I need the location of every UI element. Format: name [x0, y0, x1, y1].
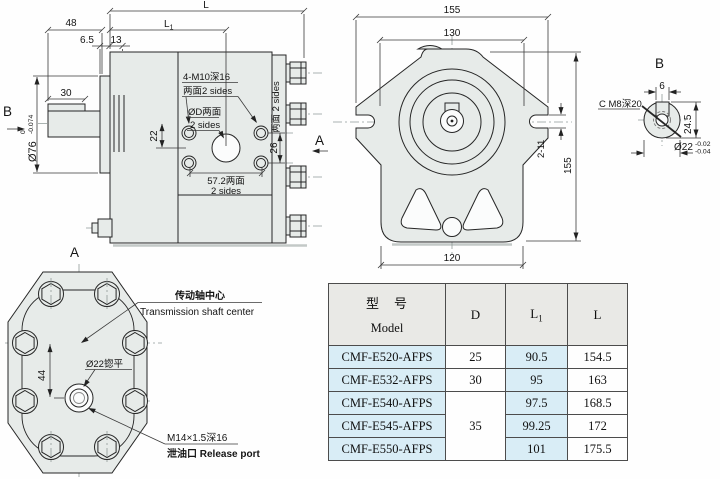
side-view: L L1 48 6.5 13 30 Ø76 0 -0.074 22 26 4-M…: [0, 0, 345, 265]
front-view: 155 130 2-11 155 120: [330, 0, 588, 285]
col-header-model-en: Model: [329, 321, 445, 336]
spec-table: 型 号 Model D L1 L CMF-E520-AFPS 25 90.5 1…: [328, 283, 628, 461]
l-cell: 175.5: [568, 438, 628, 461]
l1-cell: 95: [506, 369, 568, 392]
dim-155-right-label: 155: [563, 157, 574, 174]
l-cell: 168.5: [568, 392, 628, 415]
detailb-shaft-section: [642, 102, 681, 138]
rear-release-port: [65, 384, 93, 412]
table-row: CMF-E532-AFPS 30 95 163: [329, 369, 628, 392]
rear-view-a: A 44 Ø22锪平 传动轴中心 Transmission shaft cent…: [0, 240, 280, 479]
model-cell: CMF-E545-AFPS: [329, 415, 446, 438]
d-cell: 25: [446, 346, 506, 369]
section-label-b: B: [3, 104, 12, 119]
catalog-drawing-page: L L1 48 6.5 13 30 Ø76 0 -0.074 22 26 4-M…: [0, 0, 720, 479]
dim-overall-length-label: L: [203, 0, 209, 11]
dim-13-label: 13: [110, 35, 122, 46]
model-cell: CMF-E520-AFPS: [329, 346, 446, 369]
dim-44-label: 44: [37, 369, 48, 381]
view-label-a: A: [70, 245, 79, 260]
note-od-line2: 2 sides: [190, 120, 220, 131]
detail-b-view: B C M8深20 6 24.5 Ø22 -0.02 -0.04: [588, 50, 720, 180]
front-flange: [356, 46, 548, 243]
note-od-line1: ØD两面: [188, 107, 221, 118]
l1-cell: 101: [506, 438, 568, 461]
note-spotface-label: Ø22锪平: [86, 358, 123, 370]
note-release-port-name: 泄油口 Release port: [167, 447, 260, 460]
l-cell: 163: [568, 369, 628, 392]
spec-table-region: 型 号 Model D L1 L CMF-E520-AFPS 25 90.5 1…: [328, 283, 628, 461]
l-cell: 154.5: [568, 346, 628, 369]
col-header-model-cn: 型 号: [329, 293, 445, 312]
dim-57-2-label-en: 2 sides: [211, 186, 241, 197]
l1-cell: 99.25: [506, 415, 568, 438]
l-cell: 172: [568, 415, 628, 438]
col-header-model: 型 号 Model: [329, 284, 446, 346]
detail-label-b: B: [655, 56, 664, 71]
d-cell-merged: 35: [446, 392, 506, 461]
col-header-l1: L1: [506, 284, 568, 346]
table-row: CMF-E540-AFPS 35 97.5 168.5: [329, 392, 628, 415]
table-row: CMF-E520-AFPS 25 90.5 154.5: [329, 346, 628, 369]
note-both-sides-vertical: 两面 2 sides: [271, 81, 282, 133]
col-header-l: L: [568, 284, 628, 346]
dim-shaft-dia-label: Ø76: [27, 141, 39, 162]
section-label-a: A: [315, 133, 324, 148]
side-hex-fittings: [286, 62, 306, 237]
dim-26-label: 26: [269, 142, 280, 154]
table-header-row: 型 号 Model D L1 L: [329, 284, 628, 346]
note-c-m8-label: C M8深20: [599, 99, 642, 110]
dim-shaft-tol-lower: -0.074: [28, 115, 35, 134]
d-cell: 30: [446, 369, 506, 392]
col-header-d: D: [446, 284, 506, 346]
dim-120-label: 120: [444, 253, 461, 264]
note-m10-line2: 两面2 sides: [183, 86, 232, 97]
l1-cell: 90.5: [506, 346, 568, 369]
dim-dia22-tol-lower: -0.04: [695, 149, 711, 156]
dim-l1-label: L1: [164, 19, 174, 32]
note-shaft-center-en: Transmission shaft center: [140, 307, 255, 318]
dim-22-label: 22: [149, 130, 160, 142]
dim-slot-2-11-label: 2-11: [536, 140, 547, 158]
dim-48-label: 48: [65, 18, 77, 29]
note-release-port-spec: M14×1.5深16: [167, 432, 228, 444]
dim-24-5-label: 24.5: [683, 114, 694, 134]
dim-dia22-label: Ø22: [674, 142, 693, 153]
model-cell: CMF-E540-AFPS: [329, 392, 446, 415]
model-cell: CMF-E550-AFPS: [329, 438, 446, 461]
model-cell: CMF-E532-AFPS: [329, 369, 446, 392]
dim-key-width-label: 6: [659, 81, 665, 92]
side-pump-body: [48, 52, 286, 243]
rear-flange-body: [8, 272, 147, 473]
dim-30-label: 30: [60, 88, 72, 99]
dim-130-label: 130: [444, 28, 461, 39]
note-shaft-center-cn: 传动轴中心: [174, 289, 225, 302]
dim-dia22-tol-upper: -0.02: [695, 141, 711, 148]
dim-6-5-label: 6.5: [80, 35, 94, 46]
note-m10-line1: 4-M10深16: [183, 72, 230, 83]
dim-155-top-label: 155: [444, 5, 461, 16]
l1-cell: 97.5: [506, 392, 568, 415]
dim-shaft-tol-upper: 0: [20, 130, 27, 134]
